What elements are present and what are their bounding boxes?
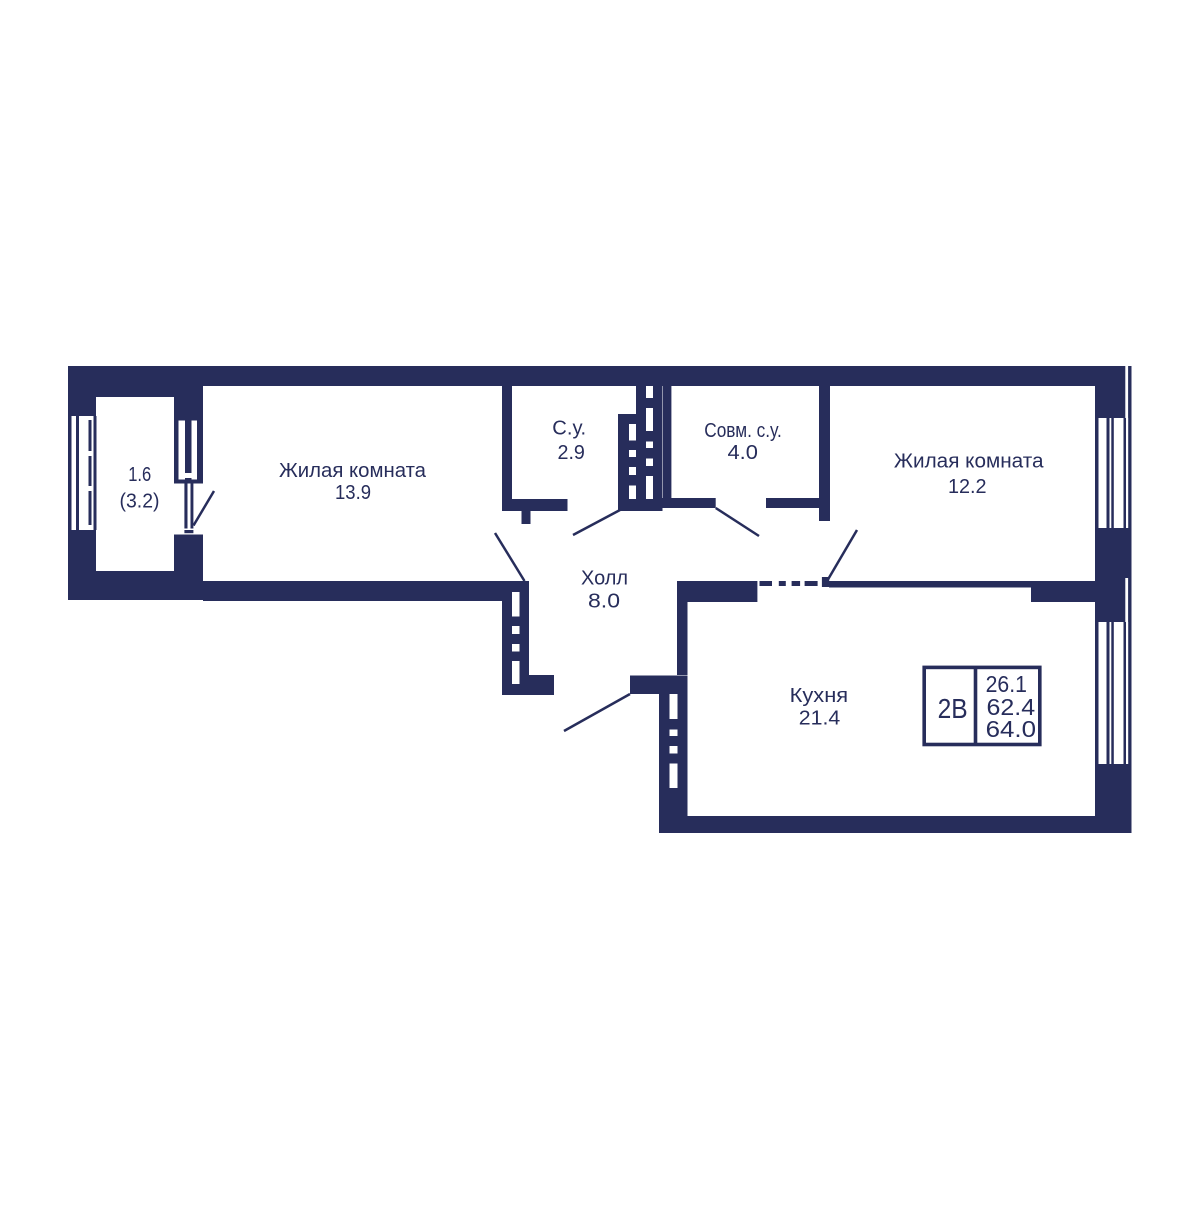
- svg-text:12.2: 12.2: [948, 476, 987, 498]
- svg-text:8.0: 8.0: [588, 591, 620, 613]
- svg-text:Кухня: Кухня: [790, 685, 849, 707]
- svg-text:(3.2): (3.2): [120, 491, 160, 513]
- svg-text:Совм. с.у.: Совм. с.у.: [704, 420, 782, 442]
- svg-text:2В: 2В: [938, 693, 968, 724]
- svg-text:Жилая комната: Жилая комната: [894, 451, 1045, 473]
- svg-text:64.0: 64.0: [986, 716, 1036, 742]
- svg-text:Жилая комната: Жилая комната: [279, 460, 427, 482]
- svg-text:13.9: 13.9: [335, 482, 371, 504]
- svg-text:4.0: 4.0: [728, 442, 758, 464]
- svg-text:1.6: 1.6: [128, 464, 151, 486]
- svg-text:21.4: 21.4: [799, 708, 841, 730]
- svg-text:2.9: 2.9: [558, 442, 585, 464]
- svg-text:С.у.: С.у.: [552, 418, 586, 440]
- svg-text:Холл: Холл: [581, 568, 628, 590]
